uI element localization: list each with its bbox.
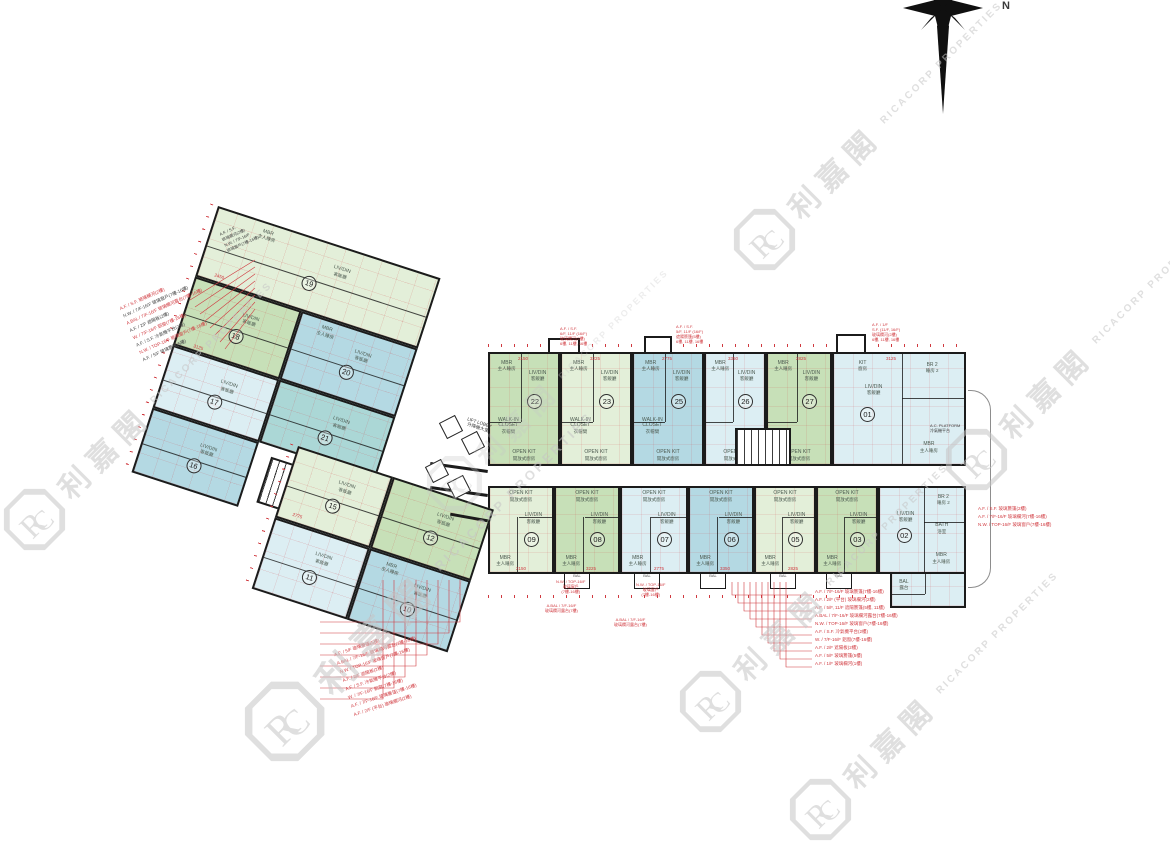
unit-number: 01 bbox=[860, 407, 875, 422]
dim-label: 3350 bbox=[728, 356, 738, 361]
room-label-livdin: LIV/DIN客飯廳 bbox=[188, 370, 267, 405]
unit-07: OPEN KIT開放式廚房 LIV/DIN客飯廳 07 MBR主人睡房 bbox=[620, 486, 688, 574]
unit-number: 05 bbox=[788, 532, 803, 547]
room-label-livdin: LIV/DIN客飯廳 bbox=[591, 371, 629, 382]
unit-25: MBR主人睡房 LIV/DIN客飯廳 25 WALK-IN CLOSET衣帽間 … bbox=[632, 352, 704, 466]
room-label-mbr: MBR主人睡房 bbox=[922, 553, 961, 564]
room-label-livdin: LIV/DIN客飯廳 bbox=[730, 371, 762, 382]
ac-platform-label: A.C. PLATFORM冷氣機平台 bbox=[930, 424, 960, 434]
room-label-livdin: LIV/DIN客飯廳 bbox=[663, 371, 701, 382]
unit-01: KIT廚房 BR 2睡房 2 LIV/DIN客飯廳 01 MBR主人睡房 bbox=[832, 352, 966, 466]
room-label-mbr: MBR主人睡房 bbox=[899, 442, 959, 453]
room-label-openkit: OPEN KIT開放式廚房 bbox=[828, 491, 865, 502]
floor-plan: MBR主人睡房 LIV/DIN客飯廳 22 WALK-IN CLOSET衣帽間 … bbox=[0, 0, 1170, 785]
compass-rose-icon bbox=[893, 0, 993, 116]
svg-text:R: R bbox=[799, 795, 839, 835]
unit-22: MBR主人睡房 LIV/DIN客飯廳 22 WALK-IN CLOSET衣帽間 … bbox=[488, 352, 560, 466]
unit-number: 12 bbox=[421, 528, 440, 547]
unit-number: 22 bbox=[527, 394, 542, 409]
unit-number: 20 bbox=[337, 363, 356, 382]
facade-outline bbox=[968, 390, 991, 588]
dim-label: 3225 bbox=[590, 356, 600, 361]
room-label-walkin: WALK-IN CLOSET衣帽間 bbox=[563, 418, 597, 434]
unit-number: 08 bbox=[590, 532, 605, 547]
unit-number: 17 bbox=[205, 393, 224, 412]
annotation-stack-top-1: A.F. / S.F.6/F, 11/F (16/F) 玻璃欄河(2樓)6樓, … bbox=[560, 326, 587, 346]
ac-platform-box bbox=[644, 336, 672, 354]
leader-lines-left bbox=[150, 255, 270, 375]
room-label-livdin: LIV/DIN客飯廳 bbox=[407, 504, 482, 537]
room-label-walkin: WALK-IN CLOSET衣帽間 bbox=[635, 418, 669, 434]
unit-number: 26 bbox=[738, 394, 753, 409]
room-label-openkit: OPEN KIT開放式廚房 bbox=[766, 491, 803, 502]
room-label-kit: KIT廚房 bbox=[839, 361, 886, 372]
page-root: { "page": {"bg": "#ffffff"}, "compass": … bbox=[0, 0, 1170, 785]
leader-lines-bottom-center bbox=[712, 552, 922, 687]
unit-08: OPEN KIT開放式廚房 LIV/DIN客飯廳 08 MBR主人睡房 bbox=[554, 486, 620, 574]
dim-label: 2150 bbox=[518, 356, 528, 361]
unit-number: 19 bbox=[300, 274, 319, 293]
room-label-livdin: LIV/DIN客飯廳 bbox=[168, 433, 247, 468]
room-label-bath: BATH浴室 bbox=[926, 523, 957, 534]
unit-number: 09 bbox=[524, 532, 539, 547]
lift-icon bbox=[425, 459, 449, 483]
room-label-livdin: LIV/DIN客飯廳 bbox=[319, 338, 405, 375]
unit-number: 15 bbox=[323, 497, 342, 516]
unit-number: 03 bbox=[850, 532, 865, 547]
room-label-livdin: LIV/DIN客飯廳 bbox=[842, 385, 906, 396]
room-label-openkit: OPEN KIT開放式廚房 bbox=[501, 491, 541, 502]
abal-note: A.BAL / 7/F-16/F玻璃欄河露台(7樓) bbox=[545, 604, 578, 614]
room-label-mbr: MBR主人睡房 bbox=[491, 556, 520, 567]
dim-label: 3125 bbox=[886, 356, 896, 361]
unit-09: OPEN KIT開放式廚房 LIV/DIN客飯廳 09 MBR主人睡房 bbox=[488, 486, 554, 574]
room-label-openkit: OPEN KIT開放式廚房 bbox=[574, 450, 618, 461]
unit-number: 16 bbox=[184, 456, 203, 475]
room-label-livdin: LIV/DIN客飯廳 bbox=[780, 513, 812, 524]
north-label: N bbox=[1002, 0, 1010, 12]
room-label-livdin: LIV/DIN客飯廳 bbox=[516, 513, 551, 524]
unit-number: 21 bbox=[315, 429, 334, 448]
unit-number: 23 bbox=[599, 394, 614, 409]
room-label-livdin: LIV/DIN客飯廳 bbox=[582, 513, 617, 524]
room-label-livdin: LIV/DIN客飯廳 bbox=[297, 405, 383, 442]
corridor bbox=[488, 466, 966, 486]
dim-label: 3225 bbox=[586, 566, 596, 571]
annotation-stack-right: A.F. / S.F. 玻璃簷篷(2樓)A.F. / 7/F-16/F 玻璃欄河… bbox=[978, 505, 1051, 529]
room-label-livdin: LIV/DIN客飯廳 bbox=[310, 473, 381, 505]
unit-number: 27 bbox=[802, 394, 817, 409]
room-label-livdin: LIV/DIN客飯廳 bbox=[794, 371, 829, 382]
room-label-livdin: LIV/DIN客飯廳 bbox=[885, 512, 926, 523]
svg-text:C: C bbox=[811, 793, 846, 828]
unit-number: 06 bbox=[724, 532, 739, 547]
unit-23: MBR主人睡房 LIV/DIN客飯廳 23 WALK-IN CLOSET衣帽間 … bbox=[560, 352, 632, 466]
room-label-openkit: OPEN KIT開放式廚房 bbox=[502, 450, 546, 461]
lift-icon bbox=[439, 415, 463, 439]
balcony-note: N.W. / TOP-16/F玻璃窗戶(7樓-16樓) bbox=[556, 580, 585, 594]
room-label-mbr: MBR主人睡房 bbox=[623, 556, 653, 567]
annotation-stack-top-3: A.F. / 1/FS.F. (11/F, 16/F) 玻璃欄河(2樓)6樓, … bbox=[872, 322, 900, 342]
balcony-note: N.W. / TOP-16/F玻璃窗戶(7樓-16樓) bbox=[636, 583, 665, 597]
room-label-br2: BR 2睡房 2 bbox=[926, 495, 960, 506]
annotation-stack-top-2: A.F. / S.F.5/F, 11/F (16/F) 遮陽簷篷(5樓)6樓, … bbox=[676, 324, 703, 344]
dim-label: 2150 bbox=[516, 566, 526, 571]
unit-number: 02 bbox=[897, 528, 912, 543]
lift-icon bbox=[461, 431, 485, 455]
room-label-openkit: OPEN KIT開放式廚房 bbox=[634, 491, 675, 502]
unit-number: 07 bbox=[657, 532, 672, 547]
dim-label: 2825 bbox=[796, 356, 806, 361]
abal-note: A.BAL / 7/F-16/F玻璃欄河露台(7樓) bbox=[614, 618, 647, 628]
room-label-openkit: OPEN KIT開放式廚房 bbox=[701, 491, 741, 502]
stair-icon bbox=[735, 428, 791, 466]
room-label-mbr: MBR主人睡房 bbox=[557, 556, 586, 567]
room-label-br2: BR 2睡房 2 bbox=[906, 363, 959, 374]
room-label-livdin: LIV/DIN客飯廳 bbox=[649, 513, 685, 524]
room-label-livdin: LIV/DIN客飯廳 bbox=[519, 371, 557, 382]
dim-label: 2775 bbox=[662, 356, 672, 361]
dim-label: 2775 bbox=[654, 566, 664, 571]
room-label-openkit: OPEN KIT開放式廚房 bbox=[646, 450, 690, 461]
leader-lines-bottom-left bbox=[310, 572, 480, 712]
room-label-walkin: WALK-IN CLOSET衣帽間 bbox=[491, 418, 525, 434]
ac-platform-box bbox=[836, 334, 866, 354]
unit-number: 25 bbox=[671, 394, 686, 409]
room-label-livdin: LIV/DIN客飯廳 bbox=[716, 513, 751, 524]
room-label-openkit: OPEN KIT開放式廚房 bbox=[567, 491, 607, 502]
room-label-livdin: LIV/DIN客飯廳 bbox=[258, 241, 423, 304]
room-label-livdin: LIV/DIN客飯廳 bbox=[842, 513, 874, 524]
